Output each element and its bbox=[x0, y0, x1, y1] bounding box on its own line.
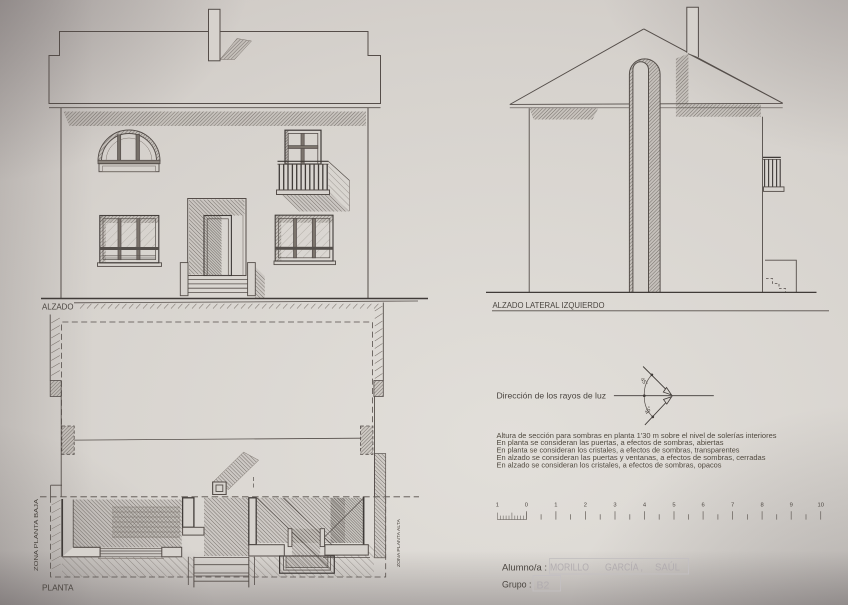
svg-text:ZONA PLANTA ALTA: ZONA PLANTA ALTA bbox=[396, 518, 402, 567]
svg-text:10: 10 bbox=[817, 503, 823, 509]
svg-text:ALZADO: ALZADO bbox=[42, 303, 74, 312]
svg-text:45°: 45° bbox=[644, 406, 654, 416]
svg-text:9: 9 bbox=[790, 503, 793, 509]
svg-text:B2: B2 bbox=[537, 580, 550, 592]
svg-text:ALZADO LATERAL IZQUIERDO: ALZADO LATERAL IZQUIERDO bbox=[493, 301, 605, 310]
svg-text:PLANTA: PLANTA bbox=[42, 583, 74, 593]
svg-text:ZONA PLANTA BAJA: ZONA PLANTA BAJA bbox=[34, 498, 40, 571]
svg-text:Dirección de los rayos de luz: Dirección de los rayos de luz bbox=[497, 391, 607, 401]
svg-text:MORILLO: MORILLO bbox=[550, 563, 589, 574]
svg-text:45°: 45° bbox=[639, 377, 649, 387]
svg-text:1: 1 bbox=[554, 503, 557, 509]
svg-text:2: 2 bbox=[584, 503, 587, 509]
svg-text:1: 1 bbox=[496, 503, 499, 509]
svg-text:SAÚL: SAÚL bbox=[655, 563, 681, 574]
svg-text:5: 5 bbox=[672, 503, 675, 509]
svg-text:GARCÍA ,: GARCÍA , bbox=[605, 563, 643, 574]
svg-text:Grupo :: Grupo : bbox=[502, 580, 532, 590]
svg-text:3: 3 bbox=[613, 503, 616, 509]
svg-text:7: 7 bbox=[731, 503, 734, 509]
svg-text:6: 6 bbox=[701, 503, 704, 509]
svg-text:En alzado se consideran los cr: En alzado se consideran los cristales, a… bbox=[497, 460, 722, 469]
svg-text:4: 4 bbox=[643, 503, 647, 509]
svg-text:0: 0 bbox=[525, 503, 528, 509]
svg-text:8: 8 bbox=[760, 503, 763, 509]
svg-text:Alumno/a :: Alumno/a : bbox=[502, 562, 547, 572]
